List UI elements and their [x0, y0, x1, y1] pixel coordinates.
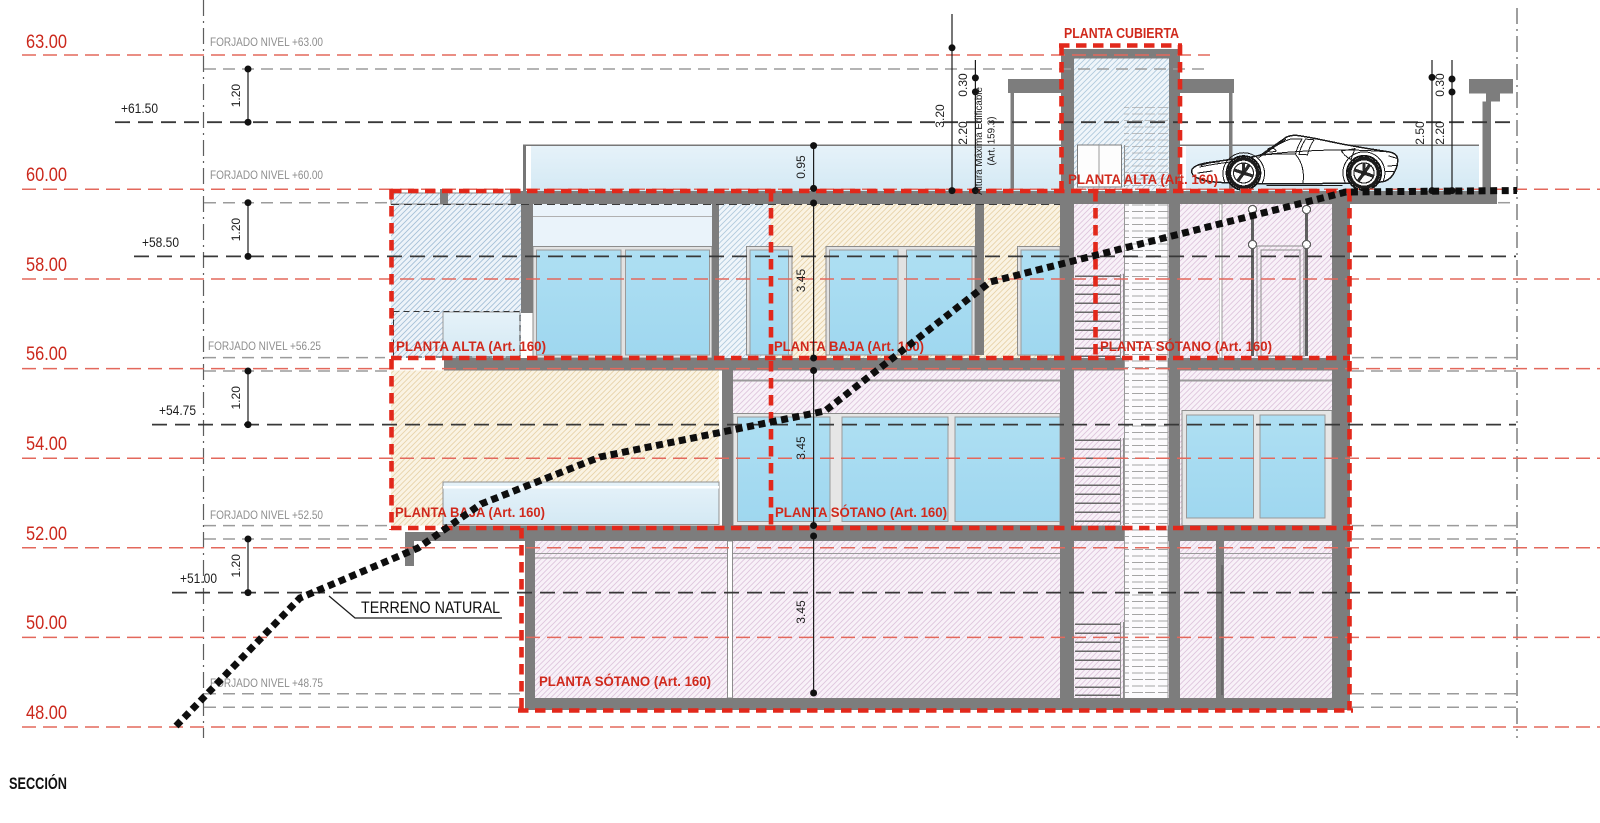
svg-text:1.20: 1.20 [229, 554, 243, 578]
svg-text:+61.50: +61.50 [121, 101, 158, 116]
svg-text:63.00: 63.00 [26, 32, 67, 53]
svg-text:3.45: 3.45 [794, 436, 808, 460]
svg-text:TERRENO NATURAL: TERRENO NATURAL [361, 598, 500, 617]
svg-text:3.45: 3.45 [794, 268, 808, 292]
svg-text:PLANTA SÓTANO (Art. 160): PLANTA SÓTANO (Art. 160) [539, 672, 711, 690]
svg-text:PLANTA SÓTANO (Art. 160): PLANTA SÓTANO (Art. 160) [1100, 337, 1272, 355]
svg-text:48.00: 48.00 [26, 703, 67, 724]
svg-text:Altura Máxima Edificable: Altura Máxima Edificable [974, 87, 985, 195]
svg-text:1.20: 1.20 [229, 84, 243, 108]
svg-text:PLANTA ALTA (Art. 160): PLANTA ALTA (Art. 160) [396, 339, 546, 355]
svg-text:2.20: 2.20 [956, 121, 970, 145]
svg-text:52.00: 52.00 [26, 524, 67, 545]
svg-text:2.50: 2.50 [1413, 121, 1427, 145]
svg-text:1.20: 1.20 [229, 386, 243, 410]
svg-text:2.20: 2.20 [1433, 121, 1447, 145]
svg-text:58.00: 58.00 [26, 255, 67, 276]
svg-text:0.30: 0.30 [956, 73, 970, 97]
svg-text:+51.00: +51.00 [180, 571, 217, 586]
svg-text:SECCIÓN: SECCIÓN [9, 774, 67, 793]
svg-text:0.95: 0.95 [794, 155, 808, 179]
svg-text:54.00: 54.00 [26, 434, 67, 455]
svg-text:FORJADO NIVEL +52.50: FORJADO NIVEL +52.50 [210, 508, 323, 522]
svg-text:FORJADO NIVEL +63.00: FORJADO NIVEL +63.00 [210, 35, 323, 49]
svg-text:FORJADO NIVEL +60.00: FORJADO NIVEL +60.00 [210, 168, 323, 182]
svg-text:60.00: 60.00 [26, 165, 67, 186]
svg-text:PLANTA ALTA (Art. 160): PLANTA ALTA (Art. 160) [1068, 172, 1218, 188]
svg-text:3.20: 3.20 [933, 104, 947, 128]
svg-text:(Art. 159.3): (Art. 159.3) [987, 116, 998, 165]
svg-text:56.00: 56.00 [26, 344, 67, 365]
svg-text:PLANTA CUBIERTA: PLANTA CUBIERTA [1064, 26, 1179, 42]
svg-text:FORJADO NIVEL +56.25: FORJADO NIVEL +56.25 [208, 339, 321, 353]
svg-text:50.00: 50.00 [26, 613, 67, 634]
svg-text:0.30: 0.30 [1433, 73, 1447, 97]
svg-text:+54.75: +54.75 [159, 403, 196, 418]
svg-text:1.20: 1.20 [229, 218, 243, 242]
svg-text:PLANTA SÓTANO (Art. 160): PLANTA SÓTANO (Art. 160) [775, 503, 947, 521]
svg-text:+58.50: +58.50 [142, 235, 179, 250]
svg-text:3.45: 3.45 [794, 600, 808, 624]
